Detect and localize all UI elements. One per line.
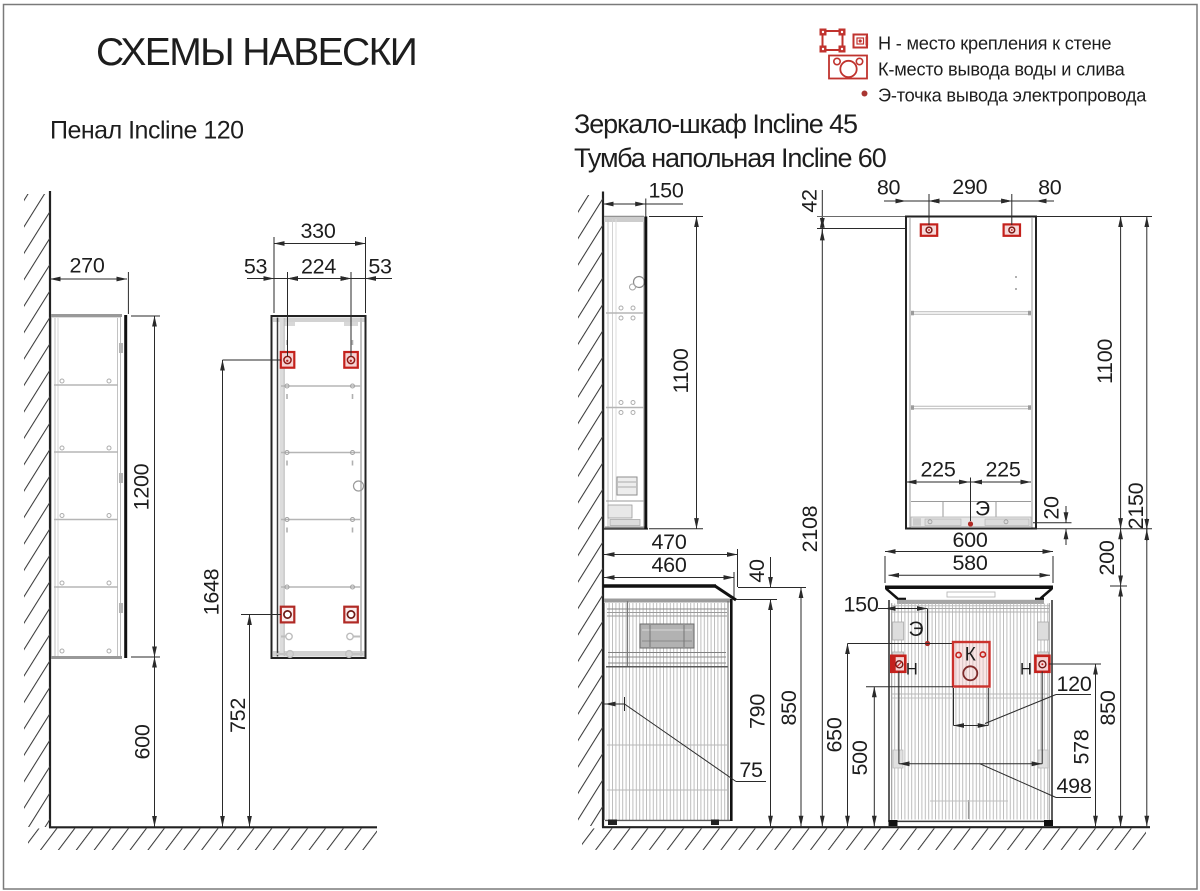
svg-text:Тумба напольная Incline 60: Тумба напольная Incline 60 xyxy=(574,143,886,173)
svg-text:К-место вывода воды и слива: К-место вывода воды и слива xyxy=(878,60,1126,80)
svg-text:500: 500 xyxy=(848,740,872,775)
svg-text:2150: 2150 xyxy=(1124,482,1148,529)
svg-text:К: К xyxy=(965,645,976,666)
svg-text:850: 850 xyxy=(1096,690,1120,725)
svg-text:200: 200 xyxy=(1095,540,1119,575)
svg-text:СХЕМЫ НАВЕСКИ: СХЕМЫ НАВЕСКИ xyxy=(96,31,416,74)
svg-text:53: 53 xyxy=(244,255,268,279)
svg-text:53: 53 xyxy=(368,255,392,279)
svg-text:600: 600 xyxy=(131,724,155,759)
svg-text:1100: 1100 xyxy=(669,348,693,393)
svg-text:150: 150 xyxy=(649,179,684,203)
svg-text:80: 80 xyxy=(877,176,901,200)
svg-text:Э: Э xyxy=(975,498,990,521)
svg-text:Н: Н xyxy=(1020,661,1032,679)
svg-text:1200: 1200 xyxy=(130,463,154,510)
svg-text:40: 40 xyxy=(745,559,769,583)
svg-text:120: 120 xyxy=(1057,672,1092,696)
svg-text:80: 80 xyxy=(1038,176,1062,200)
svg-text:460: 460 xyxy=(652,553,687,577)
svg-text:270: 270 xyxy=(70,254,105,278)
svg-text:225: 225 xyxy=(921,458,956,482)
svg-text:752: 752 xyxy=(226,698,250,733)
svg-text:498: 498 xyxy=(1057,774,1092,798)
svg-text:225: 225 xyxy=(986,458,1021,482)
svg-text:290: 290 xyxy=(952,175,987,199)
svg-text:20: 20 xyxy=(1040,496,1064,520)
svg-text:150: 150 xyxy=(844,593,879,617)
svg-text:650: 650 xyxy=(823,717,847,752)
svg-text:Н - место крепления к стене: Н - место крепления к стене xyxy=(878,34,1111,54)
svg-text:Пенал Incline 120: Пенал Incline 120 xyxy=(50,117,244,145)
svg-text:Э-точка вывода электропровода: Э-точка вывода электропровода xyxy=(878,86,1147,106)
svg-text:Зеркало-шкаф Incline 45: Зеркало-шкаф Incline 45 xyxy=(574,109,857,139)
svg-text:580: 580 xyxy=(953,551,988,575)
svg-text:224: 224 xyxy=(301,255,336,279)
svg-text:1648: 1648 xyxy=(200,568,224,615)
svg-text:790: 790 xyxy=(746,694,770,729)
svg-text:330: 330 xyxy=(301,219,336,243)
svg-text:75: 75 xyxy=(739,758,763,782)
svg-text:Э: Э xyxy=(908,618,923,641)
svg-text:578: 578 xyxy=(1070,729,1094,764)
svg-text:1100: 1100 xyxy=(1093,339,1117,384)
svg-text:42: 42 xyxy=(798,189,822,212)
svg-text:Н: Н xyxy=(906,661,918,679)
svg-text:470: 470 xyxy=(652,530,687,554)
svg-text:600: 600 xyxy=(953,528,988,552)
svg-text:2108: 2108 xyxy=(798,505,822,552)
svg-text:850: 850 xyxy=(777,690,801,725)
